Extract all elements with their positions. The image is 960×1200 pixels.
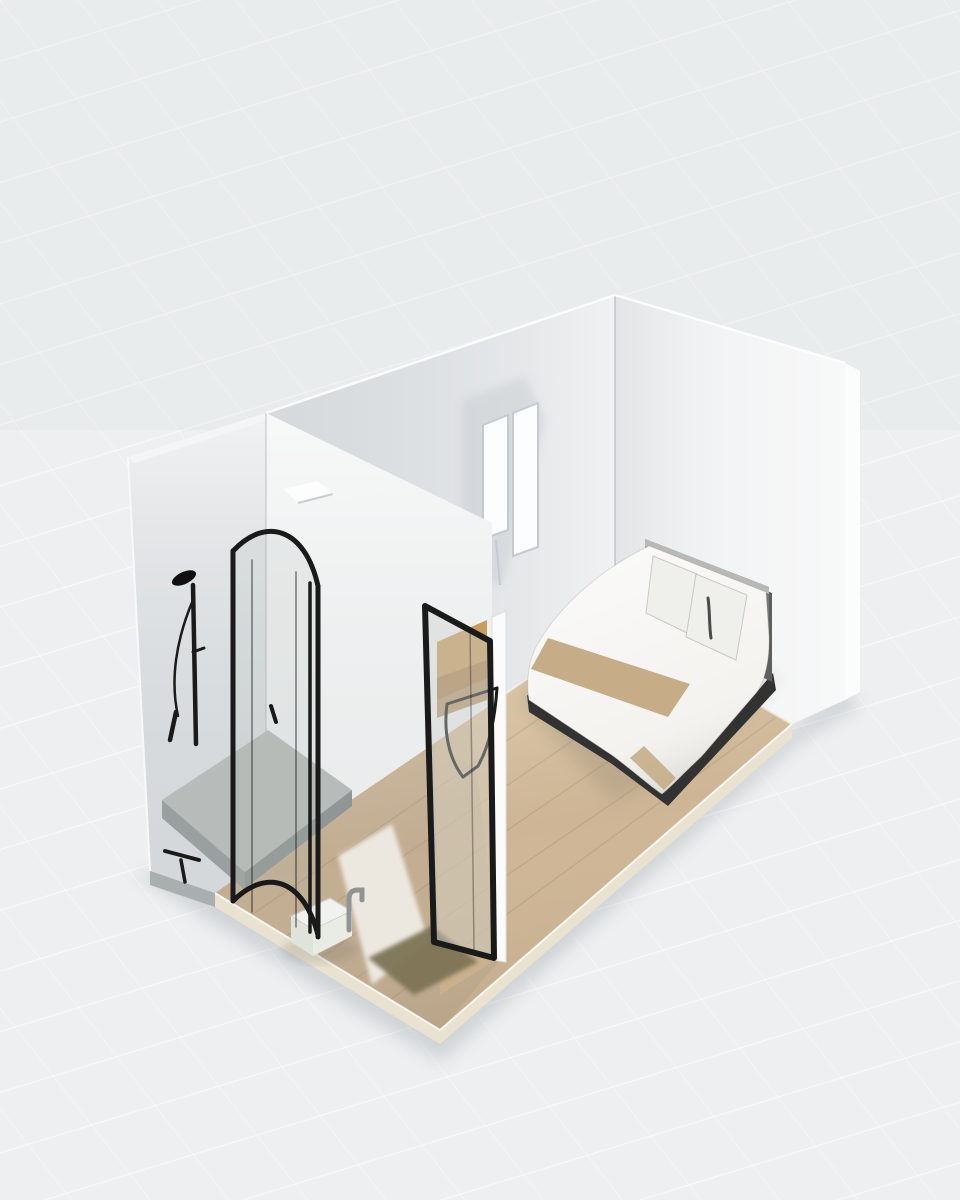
3d-viewport[interactable] (0, 0, 960, 1200)
interior-door[interactable] (425, 606, 494, 958)
shower[interactable] (233, 531, 318, 937)
shower-rail-rod (193, 585, 196, 744)
shower-glass-tint (233, 531, 318, 935)
window-pane-left (483, 415, 508, 539)
window-pane-right (513, 403, 538, 556)
right-wall-edge (845, 363, 860, 700)
